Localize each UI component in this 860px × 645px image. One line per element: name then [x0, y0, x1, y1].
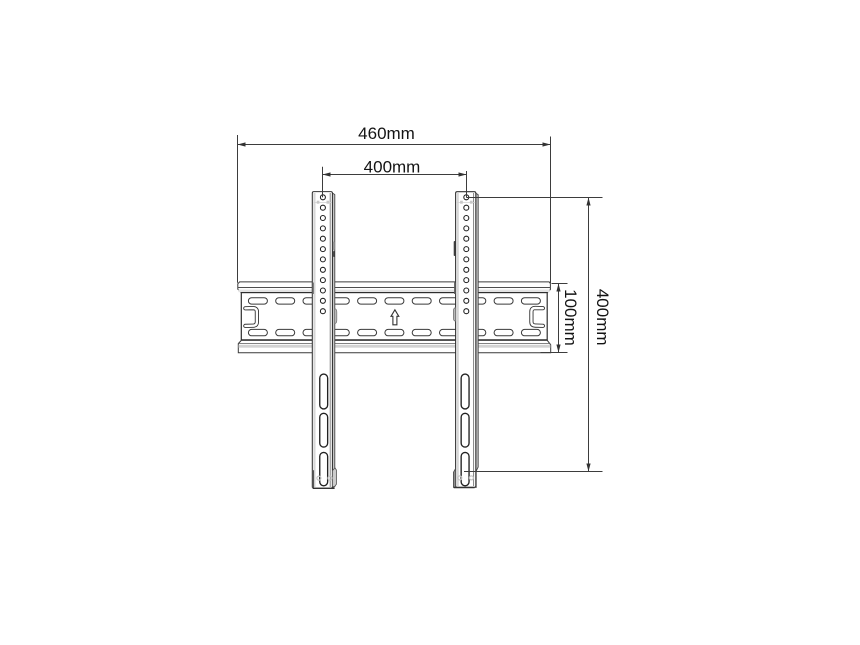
svg-text:460mm: 460mm	[358, 124, 415, 143]
svg-text:100mm: 100mm	[561, 289, 580, 346]
svg-text:400mm: 400mm	[364, 157, 421, 176]
svg-text:400mm: 400mm	[593, 289, 612, 346]
